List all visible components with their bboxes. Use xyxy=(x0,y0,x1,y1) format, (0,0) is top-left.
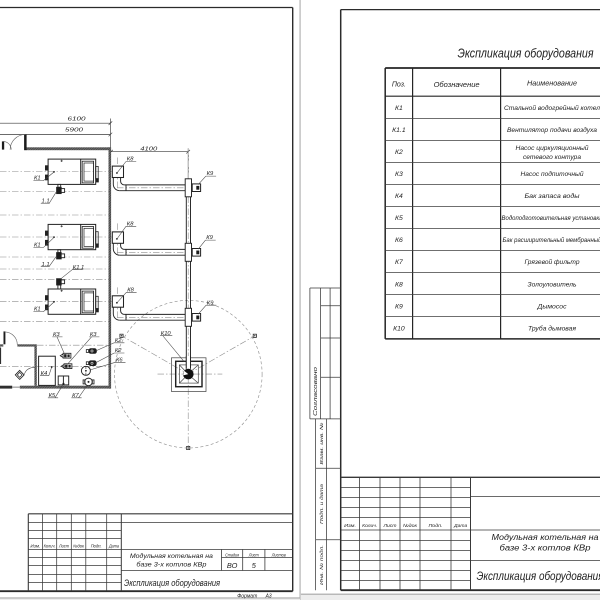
svg-text:сетевого контура: сетевого контура xyxy=(523,154,581,161)
svg-text:Грязевой фильтр: Грязевой фильтр xyxy=(525,258,580,266)
svg-text:К9: К9 xyxy=(395,303,403,310)
svg-text:Инв. № подл.: Инв. № подл. xyxy=(319,545,324,585)
svg-text:Поз.: Поз. xyxy=(392,82,406,89)
svg-text:Модульная котельная на: Модульная котельная на xyxy=(492,533,600,542)
svg-text:5900: 5900 xyxy=(65,128,84,134)
svg-text:Лист: Лист xyxy=(382,523,396,528)
svg-text:6100: 6100 xyxy=(68,117,87,123)
svg-text:базе 3-х котлов КВр: базе 3-х котлов КВр xyxy=(136,561,207,568)
svg-text:Подп.: Подп. xyxy=(91,543,102,548)
svg-text:А3: А3 xyxy=(265,593,272,599)
svg-text:Бак расширительный мембранный: Бак расширительный мембранный xyxy=(503,236,600,244)
svg-text:Экспликация оборудования: Экспликация оборудования xyxy=(458,46,594,61)
svg-text:Согласовано: Согласовано xyxy=(313,367,319,416)
svg-text:К3: К3 xyxy=(395,171,403,178)
svg-text:Экспликация оборудования: Экспликация оборудования xyxy=(124,578,220,588)
svg-text:Водоподготовительная установка: Водоподготовительная установка xyxy=(502,214,600,222)
svg-text:Формат: Формат xyxy=(237,593,257,599)
svg-text:Взам. инв. №: Взам. инв. № xyxy=(319,423,324,465)
svg-text:Обозначение: Обозначение xyxy=(434,81,480,89)
svg-text:Лист: Лист xyxy=(58,543,69,548)
svg-text:Стальной водогрейный котел: Стальной водогрейный котел xyxy=(504,104,600,112)
svg-text:базе 3-х котлов КВр: базе 3-х котлов КВр xyxy=(500,544,592,553)
svg-text:К1: К1 xyxy=(395,105,403,112)
svg-text:К4: К4 xyxy=(395,193,403,200)
svg-text:Насос циркуляционный: Насос циркуляционный xyxy=(516,144,589,152)
svg-text:ВО: ВО xyxy=(227,561,238,570)
svg-text:Труба дымовая: Труба дымовая xyxy=(528,324,576,332)
svg-text:Наименование: Наименование xyxy=(527,79,577,88)
svg-text:Экспликация оборудования: Экспликация оборудования xyxy=(477,571,600,583)
svg-text:№док: №док xyxy=(73,543,85,548)
svg-text:Изм.: Изм. xyxy=(344,523,356,528)
svg-text:Насос подпиточный: Насос подпиточный xyxy=(521,170,584,178)
svg-text:Модульная котельная на: Модульная котельная на xyxy=(130,553,214,560)
svg-text:Листов: Листов xyxy=(271,552,286,557)
svg-text:Золоуловитель: Золоуловитель xyxy=(528,281,577,288)
svg-text:Подп.: Подп. xyxy=(429,523,443,528)
svg-text:4100: 4100 xyxy=(140,147,158,153)
svg-text:№док: №док xyxy=(403,523,418,528)
svg-text:К7: К7 xyxy=(395,259,403,266)
svg-text:К10: К10 xyxy=(393,325,405,332)
svg-text:К2: К2 xyxy=(395,149,403,156)
svg-text:Колич.: Колич. xyxy=(362,523,377,528)
svg-text:Дата: Дата xyxy=(453,523,468,528)
svg-text:Дымосос: Дымосос xyxy=(536,303,567,310)
svg-text:Вентилятор подачи воздуха: Вентилятор подачи воздуха xyxy=(507,126,597,134)
svg-text:К1.1: К1.1 xyxy=(392,127,406,134)
svg-text:К8: К8 xyxy=(395,281,403,288)
svg-text:Бак запаса воды: Бак запаса воды xyxy=(525,192,580,200)
svg-text:Колич.: Колич. xyxy=(44,543,56,548)
svg-text:Дата: Дата xyxy=(108,543,119,548)
svg-text:Стадия: Стадия xyxy=(225,552,239,557)
svg-text:К5: К5 xyxy=(395,215,403,222)
svg-text:Подп. и дата: Подп. и дата xyxy=(319,483,324,524)
svg-text:Изм.: Изм. xyxy=(30,543,40,548)
svg-text:Лист: Лист xyxy=(248,552,259,557)
svg-text:К6: К6 xyxy=(395,237,403,244)
